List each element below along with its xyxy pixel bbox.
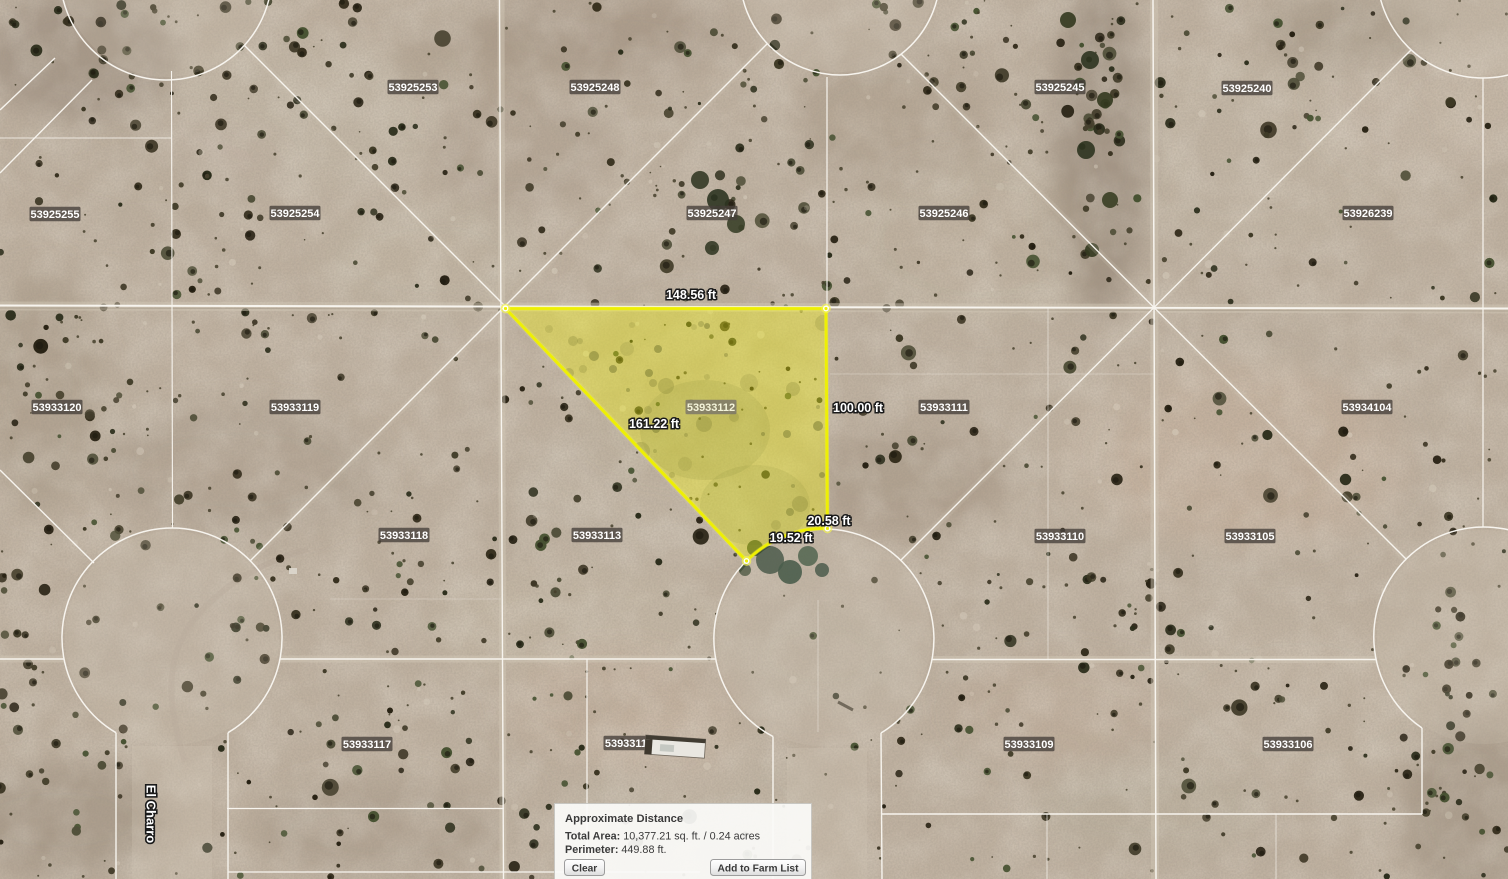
svg-text:19.52 ft: 19.52 ft (769, 531, 813, 545)
svg-text:Total Area: 10,377.21 sq. ft.: Total Area: 10,377.21 sq. ft. / 0.24 acr… (565, 831, 761, 843)
svg-text:53925255: 53925255 (31, 209, 80, 221)
svg-text:53933110: 53933110 (1036, 531, 1084, 543)
svg-text:53934104: 53934104 (1343, 402, 1393, 414)
svg-text:53925247: 53925247 (688, 208, 737, 220)
svg-text:53933106: 53933106 (1264, 739, 1313, 751)
svg-text:53925245: 53925245 (1036, 82, 1085, 94)
svg-text:53926239: 53926239 (1344, 208, 1393, 220)
svg-text:Perimeter: 449.88 ft.: Perimeter: 449.88 ft. (565, 844, 666, 856)
svg-text:53933109: 53933109 (1005, 739, 1054, 751)
svg-text:53933113: 53933113 (573, 530, 621, 542)
svg-text:100.00 ft: 100.00 ft (833, 401, 884, 415)
svg-text:53933118: 53933118 (380, 530, 428, 542)
svg-text:53933117: 53933117 (343, 739, 391, 751)
svg-text:53933119: 53933119 (271, 402, 319, 414)
svg-text:Approximate Distance: Approximate Distance (565, 813, 683, 825)
svg-text:Add to Farm List: Add to Farm List (718, 864, 800, 875)
svg-text:53933105: 53933105 (1226, 531, 1275, 543)
svg-text:53925240: 53925240 (1223, 83, 1272, 95)
svg-text:Clear: Clear (572, 864, 598, 875)
svg-text:El Charro: El Charro (144, 785, 159, 844)
svg-text:53925248: 53925248 (571, 82, 620, 94)
svg-text:53925253: 53925253 (389, 82, 438, 94)
svg-text:53925246: 53925246 (920, 208, 969, 220)
svg-text:53925254: 53925254 (271, 208, 321, 220)
svg-text:53933112: 53933112 (687, 402, 735, 414)
svg-text:53933111: 53933111 (920, 402, 968, 414)
svg-text:53933120: 53933120 (33, 402, 82, 414)
svg-text:148.56 ft: 148.56 ft (666, 288, 717, 302)
svg-text:20.58 ft: 20.58 ft (807, 514, 851, 528)
svg-text:161.22 ft: 161.22 ft (629, 417, 680, 431)
